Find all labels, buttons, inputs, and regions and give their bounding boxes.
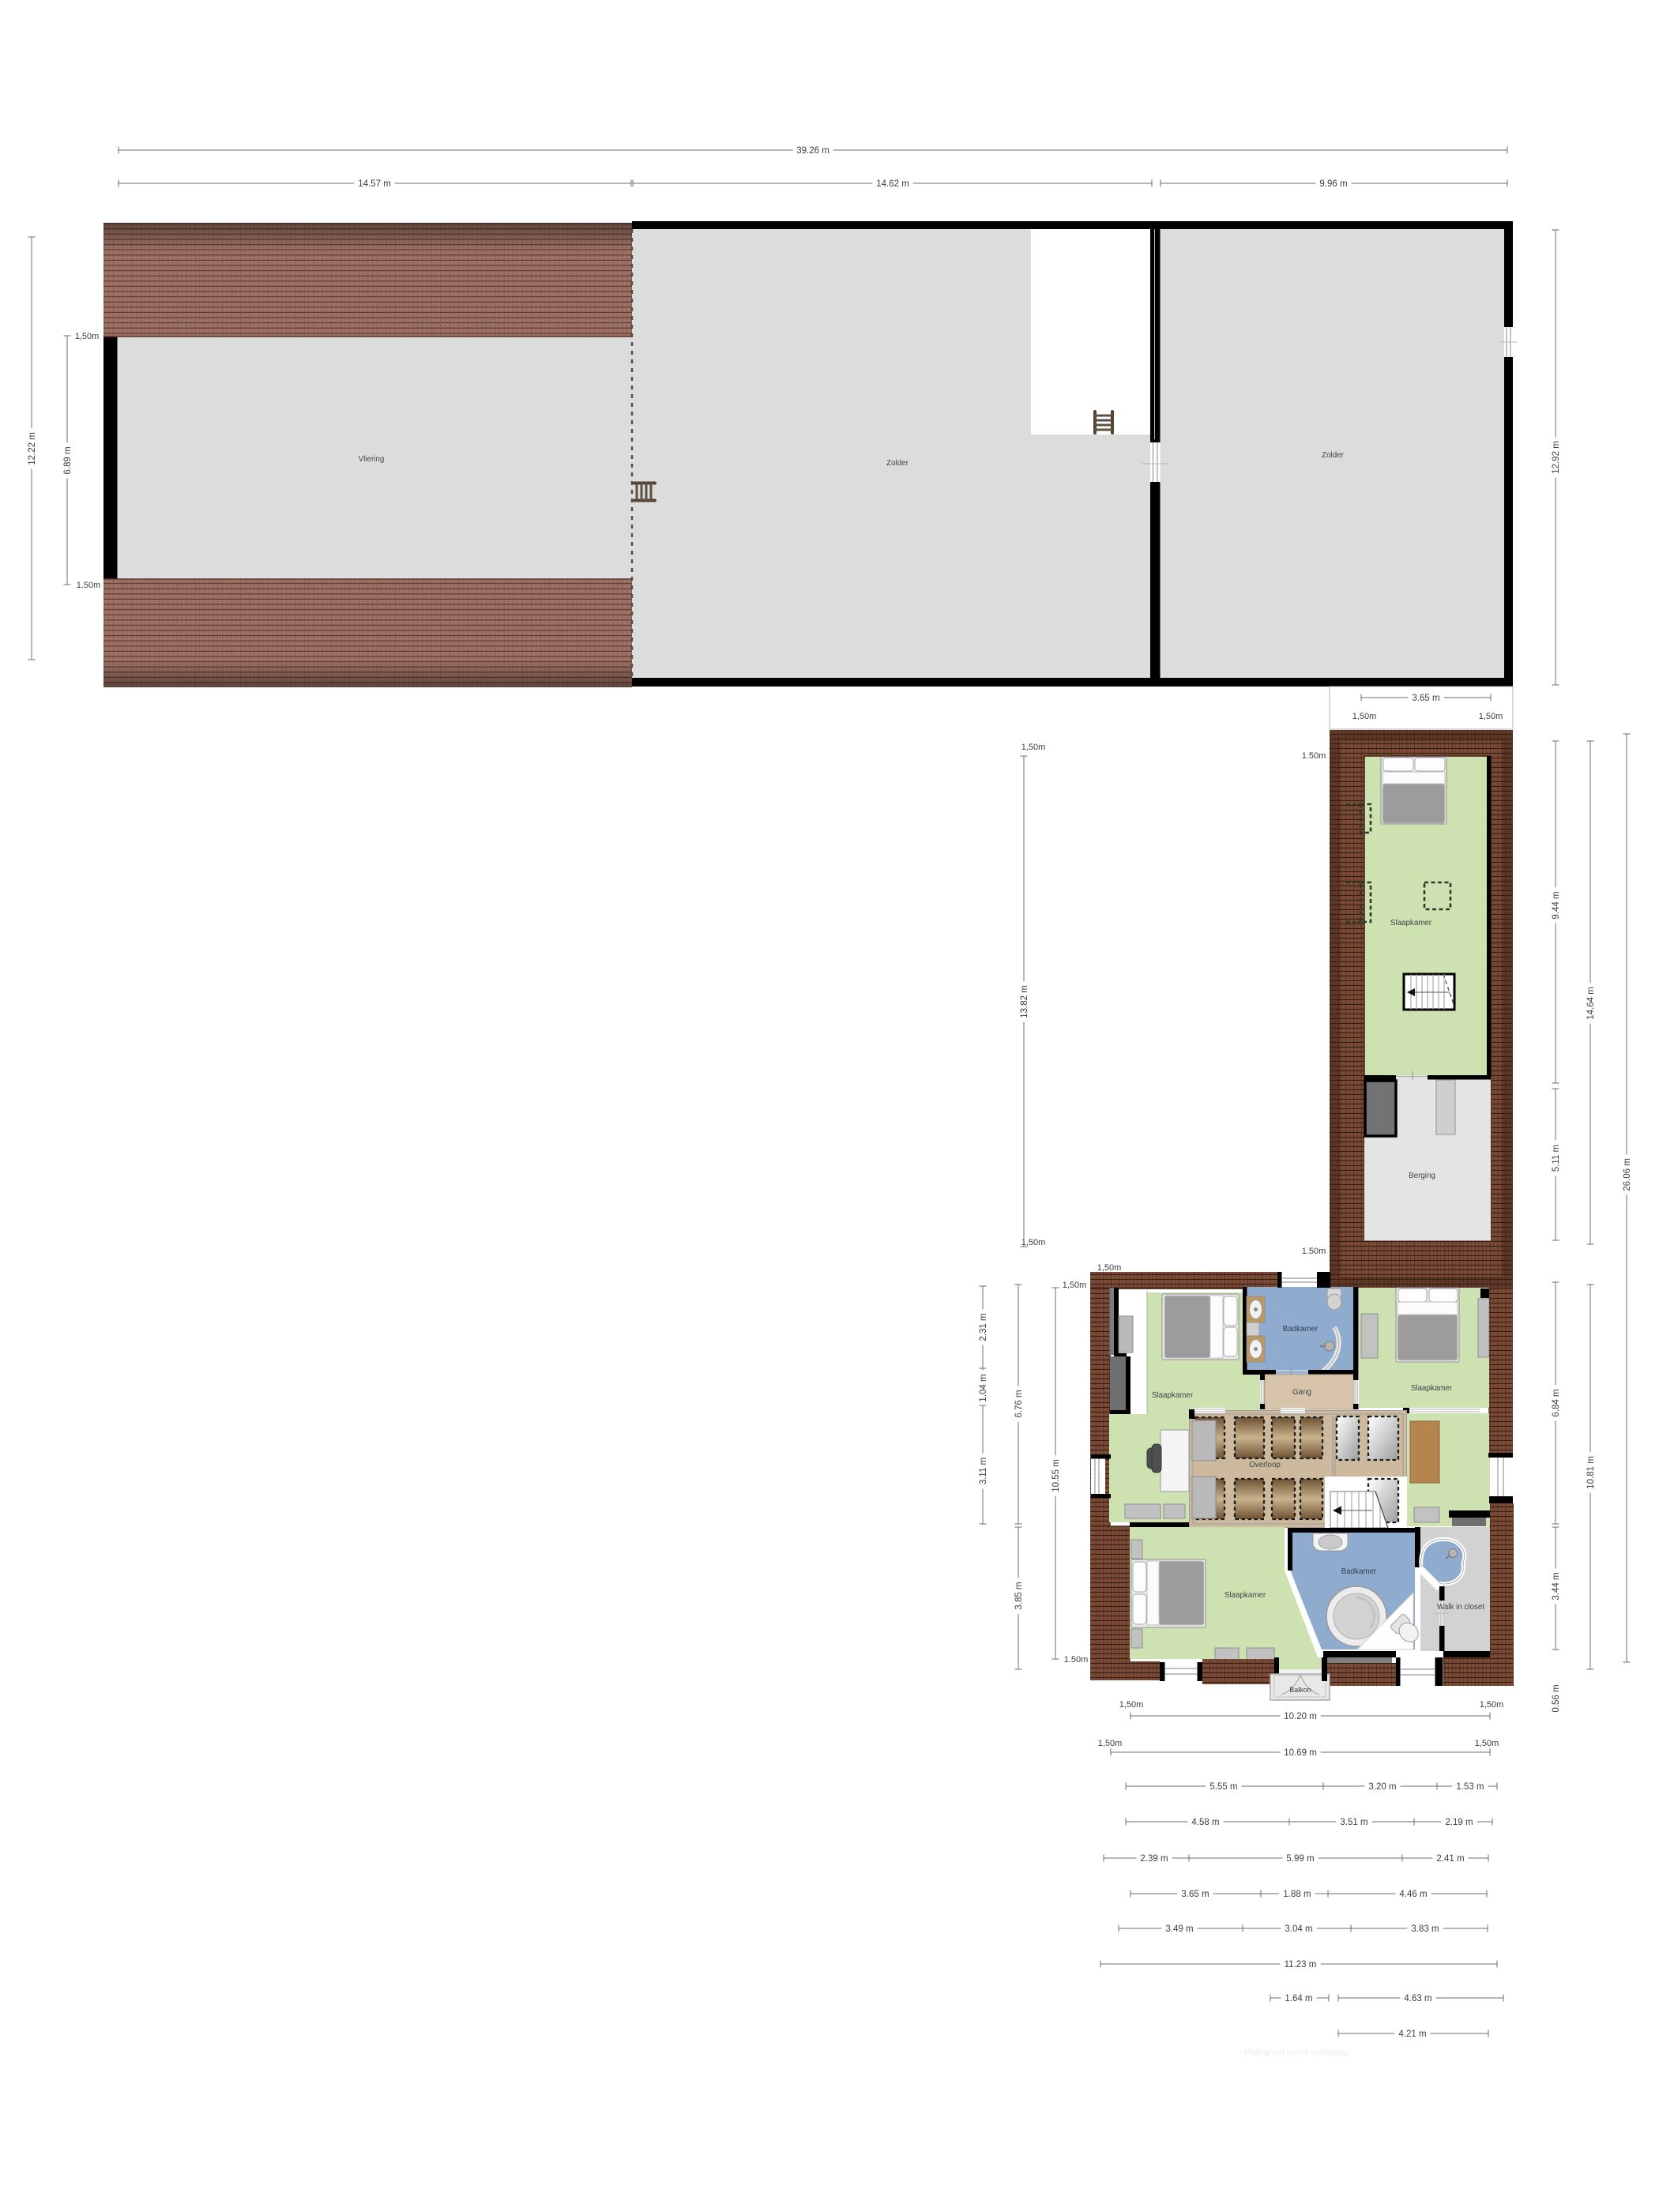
svg-text:3.49 m: 3.49 m [1165, 1924, 1193, 1934]
svg-text:6.84 m: 6.84 m [1552, 1389, 1561, 1416]
svg-text:Slaapkamer: Slaapkamer [1224, 1591, 1266, 1600]
svg-text:4.46 m: 4.46 m [1399, 1890, 1427, 1899]
svg-text:4.21 m: 4.21 m [1398, 2030, 1426, 2039]
svg-text:Zolder: Zolder [886, 459, 909, 468]
svg-text:1.64 m: 1.64 m [1285, 1994, 1312, 2003]
svg-text:9.96 m: 9.96 m [1319, 179, 1347, 189]
svg-text:Vliering: Vliering [359, 455, 385, 464]
svg-text:4.63 m: 4.63 m [1404, 1994, 1431, 2003]
svg-text:10.20 m: 10.20 m [1284, 1712, 1317, 1721]
svg-text:6.89 m: 6.89 m [63, 446, 73, 474]
svg-text:1,50m: 1,50m [1021, 1238, 1046, 1247]
svg-text:1.50m: 1.50m [1302, 751, 1326, 761]
svg-text:39.26 m: 39.26 m [796, 146, 829, 156]
svg-text:26.06 m: 26.06 m [1623, 1158, 1632, 1191]
svg-text:1,50m: 1,50m [1097, 1263, 1122, 1273]
svg-text:0.56 m: 0.56 m [1552, 1684, 1561, 1712]
svg-text:Slaapkamer: Slaapkamer [1411, 1384, 1453, 1393]
svg-text:1,50m: 1,50m [1119, 1700, 1144, 1710]
svg-text:2.39 m: 2.39 m [1140, 1854, 1168, 1864]
svg-text:Overloop: Overloop [1249, 1461, 1281, 1469]
svg-text:3.44 m: 3.44 m [1552, 1572, 1561, 1600]
svg-text:14.62 m: 14.62 m [876, 179, 909, 189]
svg-text:3.65 m: 3.65 m [1412, 694, 1439, 703]
svg-text:3.83 m: 3.83 m [1411, 1924, 1439, 1934]
svg-text:10.69 m: 10.69 m [1284, 1748, 1317, 1758]
svg-text:Badkamer: Badkamer [1283, 1325, 1319, 1334]
svg-text:Slaapkamer: Slaapkamer [1152, 1391, 1194, 1400]
svg-text:1,50m: 1,50m [1479, 712, 1503, 721]
svg-text:1,50m: 1,50m [1475, 1739, 1499, 1748]
svg-text:5.11 m: 5.11 m [1552, 1145, 1561, 1172]
svg-text:1.04 m: 1.04 m [979, 1374, 988, 1401]
svg-text:10.81 m: 10.81 m [1586, 1456, 1596, 1489]
svg-text:12.92 m: 12.92 m [1552, 441, 1561, 474]
svg-text:Berging: Berging [1409, 1172, 1435, 1180]
svg-text:Plattegrond eerste verdieping: Plattegrond eerste verdieping [1244, 2048, 1348, 2057]
svg-text:10.55 m: 10.55 m [1051, 1459, 1061, 1492]
svg-text:Gang: Gang [1292, 1388, 1311, 1397]
svg-text:5.55 m: 5.55 m [1209, 1782, 1237, 1792]
svg-text:2.41 m: 2.41 m [1436, 1854, 1464, 1864]
svg-text:Balkon: Balkon [1289, 1686, 1311, 1694]
svg-text:1.53 m: 1.53 m [1456, 1782, 1484, 1792]
svg-text:13.82 m: 13.82 m [1020, 985, 1029, 1018]
svg-text:9.44 m: 9.44 m [1552, 891, 1561, 919]
svg-text:3.20 m: 3.20 m [1368, 1782, 1396, 1792]
svg-text:1.50m: 1.50m [77, 581, 101, 590]
svg-text:2.19 m: 2.19 m [1445, 1818, 1473, 1827]
svg-text:4.58 m: 4.58 m [1191, 1818, 1219, 1827]
svg-text:Badkamer: Badkamer [1341, 1567, 1377, 1576]
svg-text:Slaapkamer: Slaapkamer [1390, 919, 1432, 927]
svg-text:3.65 m: 3.65 m [1181, 1890, 1209, 1899]
svg-text:Zolder: Zolder [1322, 451, 1345, 460]
svg-text:3.11 m: 3.11 m [979, 1458, 988, 1484]
svg-text:1,50m: 1,50m [1063, 1281, 1087, 1290]
svg-text:12.22 m: 12.22 m [28, 432, 37, 465]
svg-text:14.57 m: 14.57 m [358, 179, 391, 189]
svg-text:Walk in closet: Walk in closet [1437, 1603, 1484, 1612]
svg-text:1.88 m: 1.88 m [1283, 1890, 1311, 1899]
svg-text:1.50m: 1.50m [1064, 1655, 1089, 1665]
svg-text:11.23 m: 11.23 m [1285, 1960, 1317, 1969]
svg-text:3.85 m: 3.85 m [1014, 1582, 1024, 1609]
svg-text:1,50m: 1,50m [1480, 1700, 1504, 1710]
svg-text:6.76 m: 6.76 m [1014, 1390, 1024, 1417]
svg-text:14.64 m: 14.64 m [1586, 987, 1596, 1020]
svg-text:1,50m: 1,50m [1352, 712, 1377, 721]
svg-text:3.51 m: 3.51 m [1340, 1818, 1367, 1827]
svg-text:1.50m: 1.50m [1302, 1247, 1326, 1256]
svg-text:1,50m: 1,50m [75, 332, 100, 341]
svg-text:2.31 m: 2.31 m [979, 1313, 988, 1341]
svg-text:1,50m: 1,50m [1021, 743, 1046, 752]
svg-text:3.04 m: 3.04 m [1285, 1924, 1312, 1934]
svg-text:1,50m: 1,50m [1098, 1739, 1123, 1748]
svg-text:5.99 m: 5.99 m [1286, 1854, 1314, 1864]
